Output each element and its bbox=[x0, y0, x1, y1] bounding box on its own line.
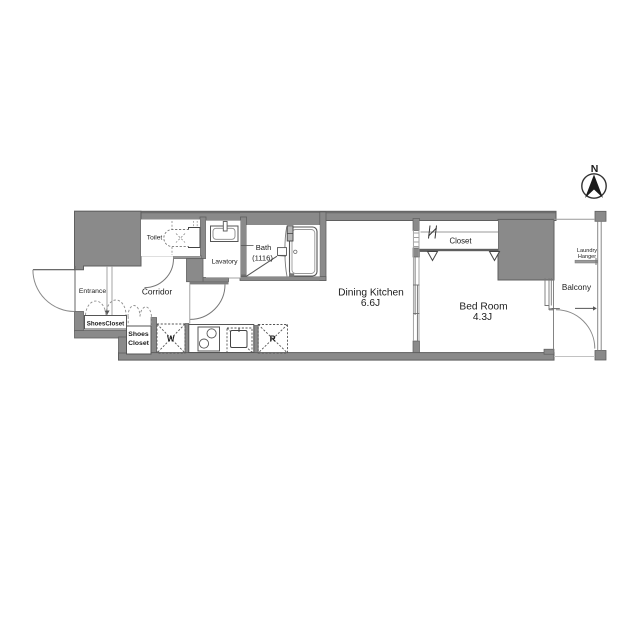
svg-text:Dining Kitchen: Dining Kitchen bbox=[338, 287, 404, 298]
svg-text:Entrance: Entrance bbox=[79, 288, 106, 295]
svg-text:Corridor: Corridor bbox=[142, 286, 172, 296]
svg-text:N: N bbox=[591, 163, 599, 175]
svg-text:Balcony: Balcony bbox=[562, 283, 592, 292]
svg-text:6.6J: 6.6J bbox=[361, 298, 380, 309]
svg-text:Toilet: Toilet bbox=[147, 234, 163, 241]
svg-text:ShoesCloset: ShoesCloset bbox=[87, 321, 124, 328]
svg-text:Shoes: Shoes bbox=[128, 331, 149, 338]
svg-text:4.3J: 4.3J bbox=[473, 312, 492, 323]
svg-text:(1116): (1116) bbox=[252, 254, 273, 263]
svg-text:Hanger: Hanger bbox=[578, 254, 596, 260]
svg-text:R: R bbox=[270, 334, 276, 344]
svg-text:Bath: Bath bbox=[256, 243, 272, 252]
svg-text:Closet: Closet bbox=[449, 236, 472, 245]
svg-text:Bed Room: Bed Room bbox=[459, 302, 507, 313]
svg-text:W: W bbox=[167, 334, 175, 343]
svg-text:Lavatory: Lavatory bbox=[211, 259, 238, 266]
svg-text:Closet: Closet bbox=[128, 340, 150, 347]
